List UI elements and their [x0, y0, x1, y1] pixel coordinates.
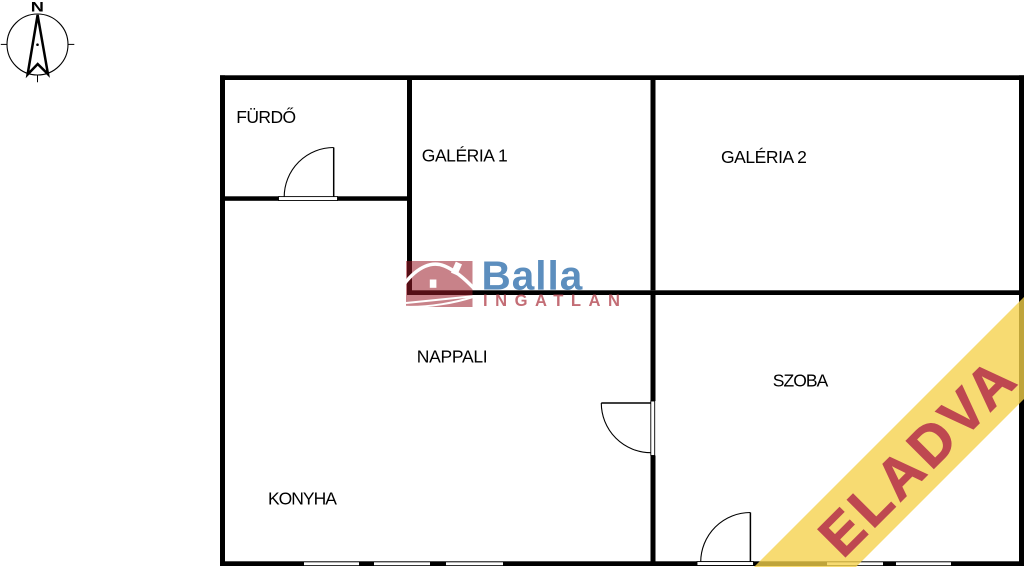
- svg-text:NAPPALI: NAPPALI: [417, 347, 488, 367]
- svg-text:FÜRDŐ: FÜRDŐ: [236, 106, 295, 127]
- svg-text:SZOBA: SZOBA: [773, 371, 829, 391]
- svg-text:N: N: [31, 0, 44, 15]
- svg-text:INGATLAN: INGATLAN: [483, 291, 628, 310]
- svg-text:KONYHA: KONYHA: [268, 489, 337, 509]
- svg-text:GALÉRIA 1: GALÉRIA 1: [422, 145, 507, 165]
- svg-text:GALÉRIA 2: GALÉRIA 2: [721, 147, 806, 167]
